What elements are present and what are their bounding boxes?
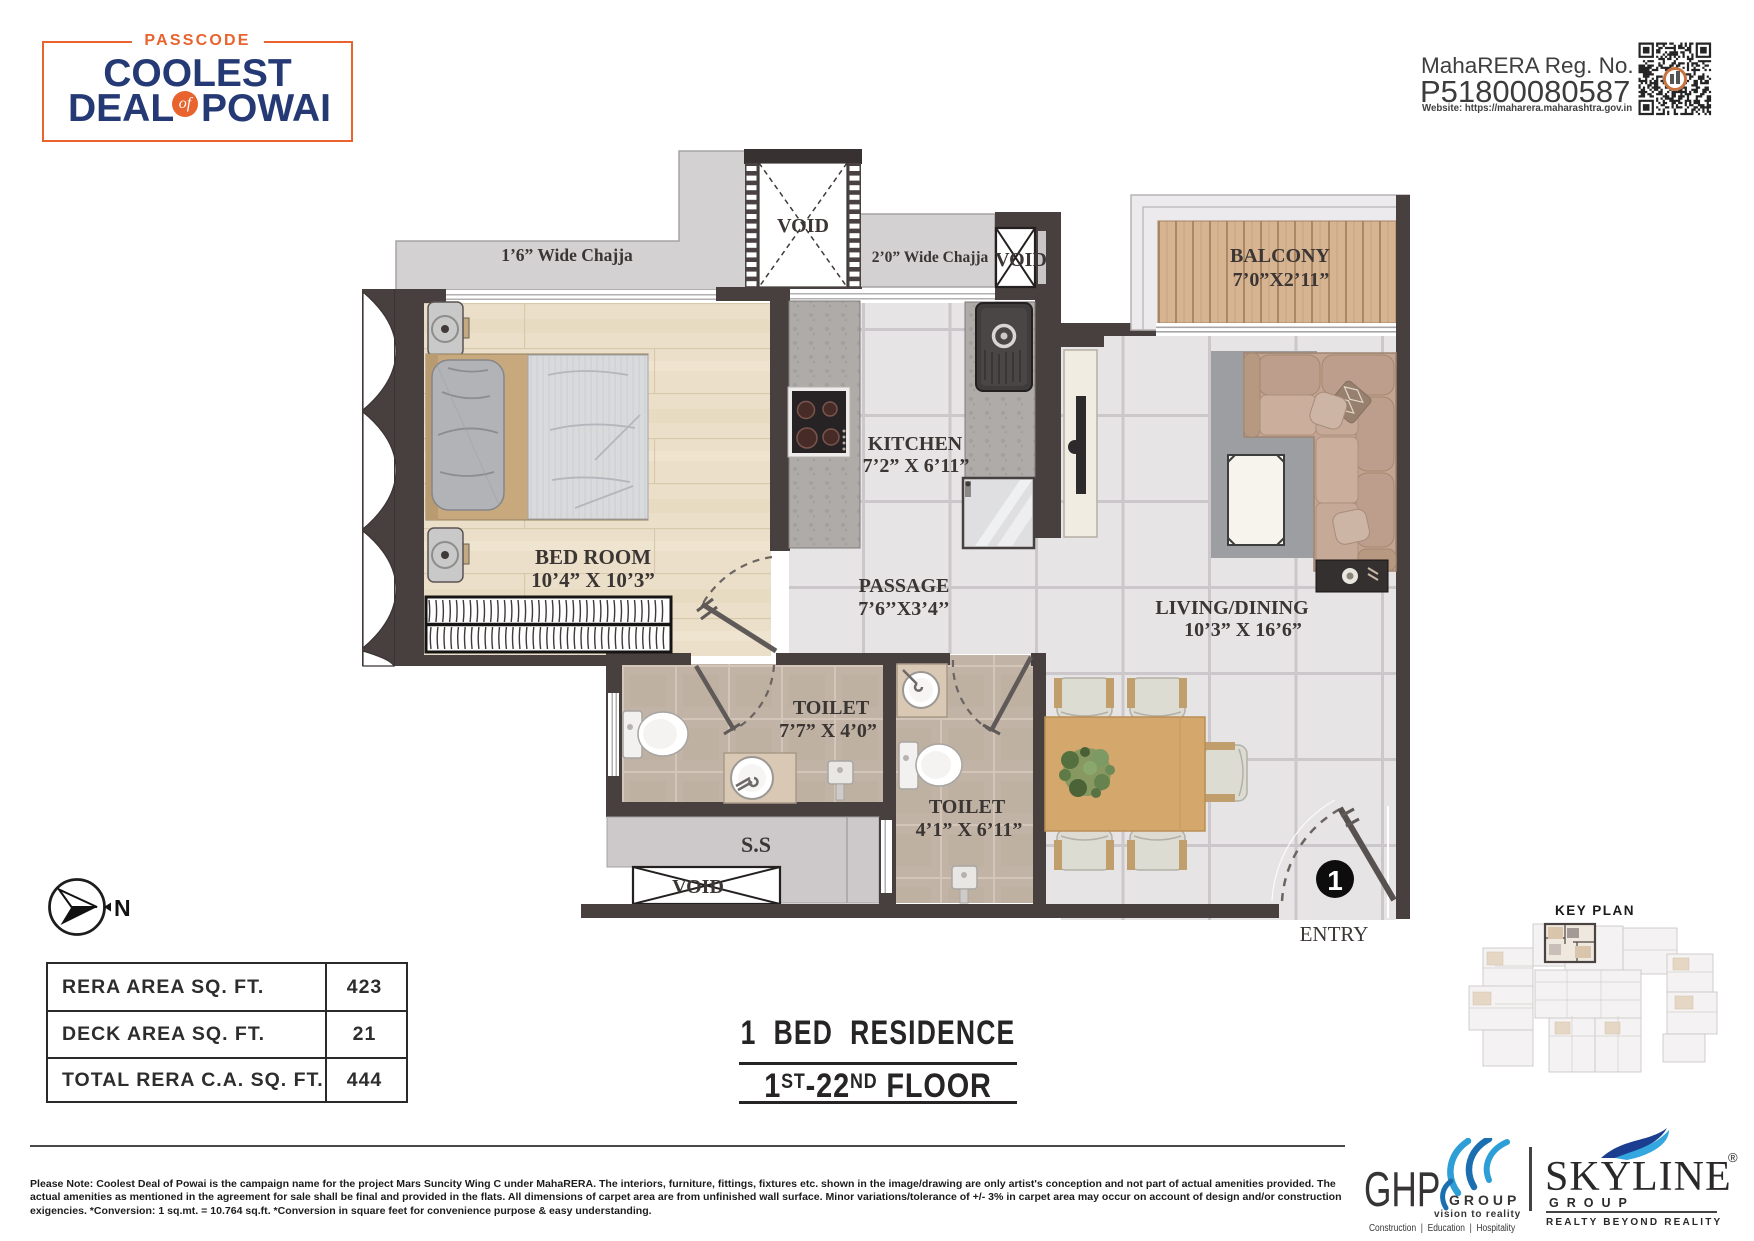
svg-text:S.S: S.S [741, 832, 771, 857]
svg-text:1: 1 [1327, 865, 1343, 896]
svg-text:BED ROOM: BED ROOM [535, 545, 651, 569]
svg-text:7’7” X 4’0”: 7’7” X 4’0” [779, 720, 877, 742]
svg-text:TOILET: TOILET [929, 796, 1006, 818]
svg-text:ENTRY: ENTRY [1300, 922, 1369, 946]
svg-text:REALTY BEYOND REALITY: REALTY BEYOND REALITY [1546, 1217, 1722, 1228]
svg-text:4’1” X 6’11”: 4’1” X 6’11” [916, 819, 1023, 841]
svg-text:10’4” X 10’3”: 10’4” X 10’3” [531, 568, 655, 592]
svg-text:1’6” Wide Chajja: 1’6” Wide Chajja [501, 245, 633, 265]
svg-text:GROUP: GROUP [1449, 1192, 1520, 1208]
svg-text:PASSAGE: PASSAGE [859, 575, 950, 597]
svg-text:Construction | Education |: Construction | Education | Hospitality [1369, 1222, 1515, 1234]
svg-text:GROUP: GROUP [1549, 1196, 1635, 1210]
svg-text:VOID: VOID [995, 249, 1047, 271]
svg-text:GHP: GHP [1364, 1162, 1440, 1217]
svg-text:VOID: VOID [672, 876, 724, 898]
svg-text:vision to reality: vision to reality [1434, 1209, 1521, 1220]
svg-text:VOID: VOID [777, 215, 829, 237]
svg-text:7’6’’X3’4’’: 7’6’’X3’4’’ [858, 598, 949, 620]
svg-text:N: N [114, 895, 131, 921]
svg-text:KEY PLAN: KEY PLAN [1555, 903, 1635, 918]
svg-text:SKYLINE: SKYLINE [1545, 1154, 1732, 1200]
svg-text:LIVING/DINING: LIVING/DINING [1155, 597, 1309, 619]
svg-text:10’3” X 16’6”: 10’3” X 16’6” [1184, 619, 1302, 641]
svg-text:BALCONY: BALCONY [1230, 245, 1331, 267]
svg-text:7’0”X2’11”: 7’0”X2’11” [1233, 269, 1330, 291]
svg-text:2’0” Wide Chajja: 2’0” Wide Chajja [872, 249, 989, 266]
svg-text:TOILET: TOILET [793, 697, 870, 719]
svg-text:KITCHEN: KITCHEN [868, 433, 963, 455]
svg-text:7’2” X 6’11”: 7’2” X 6’11” [863, 455, 970, 477]
svg-text:®: ® [1728, 1150, 1738, 1165]
